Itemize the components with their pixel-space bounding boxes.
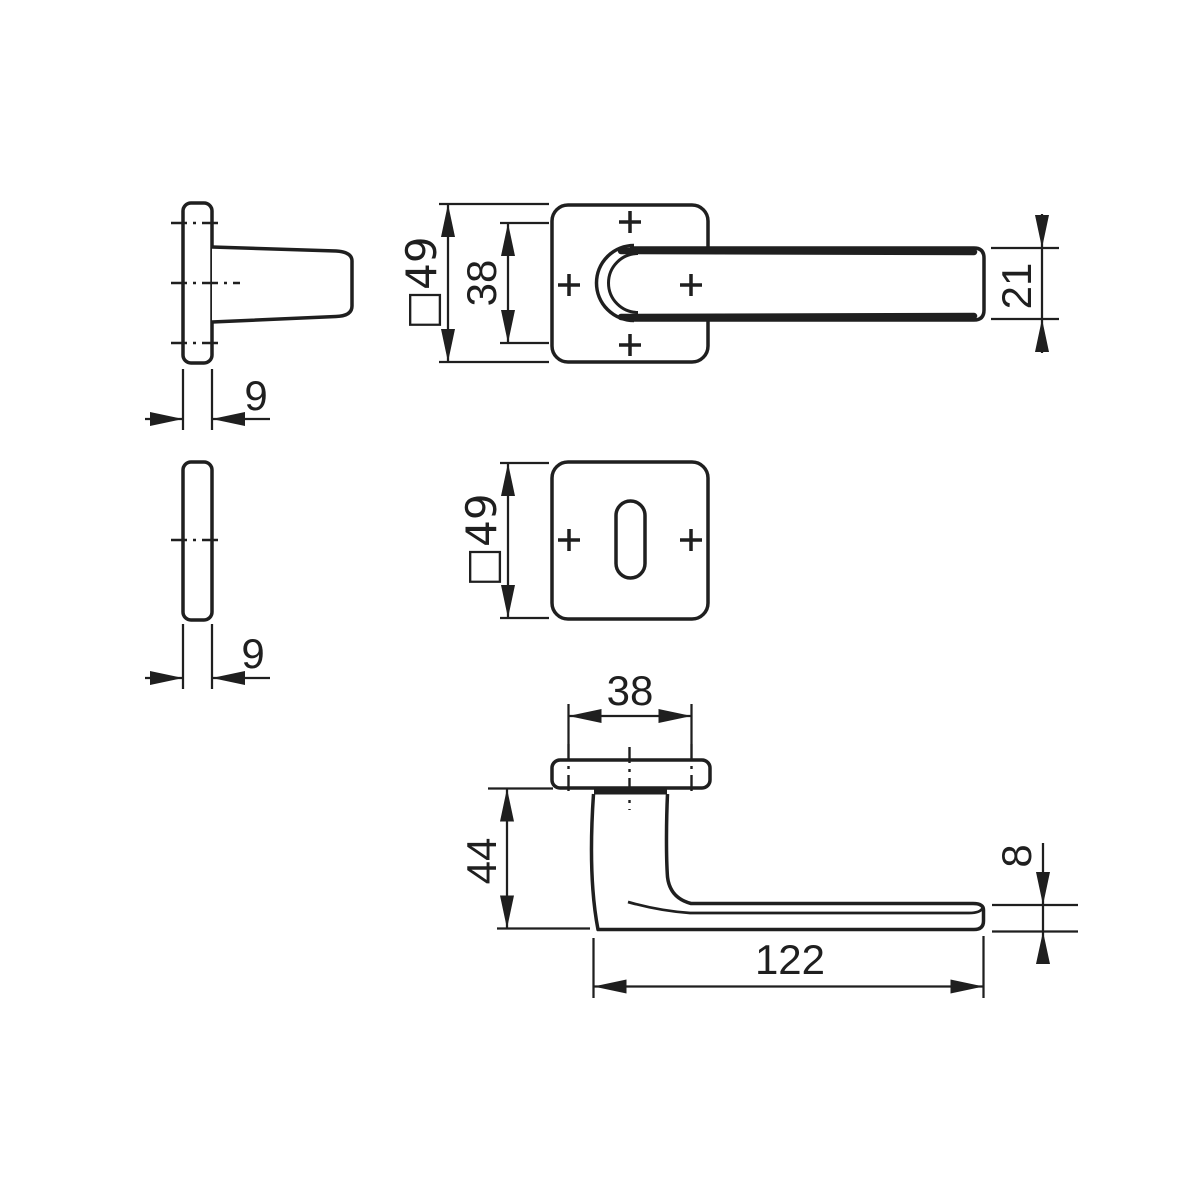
- grip-top-edge: [621, 251, 974, 252]
- arrow-up-icon: [1036, 932, 1050, 965]
- arrow-right-icon: [150, 671, 183, 685]
- arrow-right-icon: [951, 980, 984, 994]
- technical-drawing-canvas: 9 □49 38: [0, 0, 1200, 1200]
- arrow-up-icon: [1035, 319, 1049, 352]
- dimension-label-neck-width-profile: 38: [607, 667, 654, 714]
- rose-edge-view: [552, 760, 710, 788]
- view-handle-rose-side: 9: [145, 203, 352, 430]
- dimension-label-rose-thickness: 9: [244, 372, 267, 419]
- arrow-left-icon: [212, 671, 245, 685]
- dimension-label-grip-width: 21: [993, 263, 1040, 310]
- grip-bottom-edge: [621, 316, 974, 317]
- dimension-neck-width: 38: [458, 223, 549, 343]
- view-key-rose-front: □49: [457, 462, 708, 619]
- handle-neck-cone: [212, 247, 352, 322]
- view-key-rose-side: 9: [145, 462, 270, 689]
- dimension-length: 122: [594, 936, 984, 998]
- dimension-label-projection: 44: [458, 838, 505, 885]
- dimension-label-rose-square: □49: [397, 236, 446, 329]
- dimension-rose-thickness: 9: [145, 369, 270, 430]
- view-handle-profile: 38 44 8 122: [458, 667, 1078, 998]
- arrow-down-icon: [441, 329, 455, 362]
- arrow-left-icon: [212, 412, 245, 426]
- arrow-up-icon: [501, 223, 515, 256]
- arrow-left-icon: [569, 709, 602, 723]
- dimension-label-grip-thickness: 8: [993, 844, 1040, 867]
- view-handle-front: □49 38 21: [397, 204, 1059, 362]
- arrow-down-icon: [500, 896, 514, 929]
- dimension-grip-width: 21: [991, 214, 1059, 353]
- arrow-up-icon: [500, 789, 514, 822]
- arrow-right-icon: [659, 709, 692, 723]
- dimension-projection: 44: [458, 789, 590, 929]
- lever-profile-outline: [591, 794, 983, 930]
- dimension-neck-width-profile: 38: [569, 667, 692, 723]
- arrow-left-icon: [594, 980, 627, 994]
- dimension-label-length: 122: [755, 936, 825, 983]
- dimension-key-rose-square: □49: [457, 463, 549, 618]
- dimension-key-rose-thickness: 9: [145, 624, 270, 689]
- dimension-grip-thickness: 8: [992, 843, 1078, 964]
- arrow-down-icon: [501, 585, 515, 618]
- dimension-label-neck-width: 38: [458, 260, 505, 307]
- dimension-label-key-rose-square: □49: [457, 493, 506, 586]
- arrow-right-icon: [150, 412, 183, 426]
- arrow-down-icon: [1035, 215, 1049, 248]
- keyhole-slot: [616, 501, 645, 578]
- arrow-up-icon: [441, 204, 455, 237]
- dimension-label-key-rose-thickness: 9: [241, 630, 264, 677]
- arrow-up-icon: [501, 463, 515, 496]
- arrow-down-icon: [501, 310, 515, 343]
- door-handle-technical-drawing: 9 □49 38: [0, 0, 1200, 1200]
- arrow-down-icon: [1036, 872, 1050, 905]
